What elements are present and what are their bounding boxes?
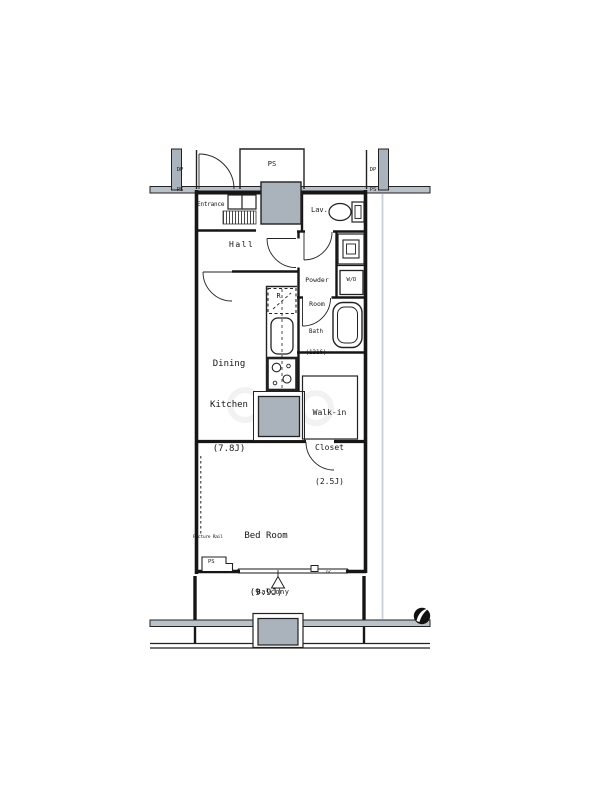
small-mark-right-label: nc [326, 570, 331, 575]
lavatory-door [304, 232, 332, 260]
washer-dryer-label: W/D [340, 277, 363, 283]
floorplan-page: DP PS PS DP PS Entrance Lav. Hall Powder… [0, 0, 600, 800]
bed-room-label: Bed Room (9.9J) [224, 489, 308, 641]
refrigerator-label: R [277, 292, 281, 300]
ps-bottom-label: PS [208, 559, 215, 565]
shaft-middle [259, 397, 300, 437]
lavatory-label: Lav. [311, 206, 328, 214]
washbasin-icon [338, 234, 364, 264]
hall-label: Hall [229, 240, 254, 249]
dp-ps-left-label: DP PS [174, 154, 186, 206]
dp-ps-right-label: DP PS [367, 154, 379, 206]
toilet-icon [329, 202, 364, 222]
entrance-door-arc [199, 154, 234, 189]
entrance-step-hatch [223, 211, 256, 224]
entrance-label: Entrance [197, 201, 224, 208]
bathtub-icon [333, 303, 362, 348]
balcony-label: Balcony [242, 588, 304, 596]
walk-in-closet-label: Walk-in Closet (2.5J) [301, 384, 358, 511]
bath-label: Bath (1216) [300, 315, 332, 371]
logo-mark [414, 608, 430, 624]
shoe-cabinet-icon [228, 195, 256, 209]
dining-kitchen-door [203, 272, 232, 301]
sink-icon [271, 318, 293, 354]
floorplan-linework [0, 0, 600, 800]
window-mark [311, 566, 318, 572]
pillar-right [379, 149, 389, 190]
picture-rail-label: Picture Rail [193, 535, 223, 540]
shaft-top [261, 182, 301, 224]
ps-top-label: PS [262, 160, 282, 168]
hall-door [267, 239, 296, 268]
dining-kitchen-label: Dining Kitchen (7.8J) [196, 331, 262, 484]
